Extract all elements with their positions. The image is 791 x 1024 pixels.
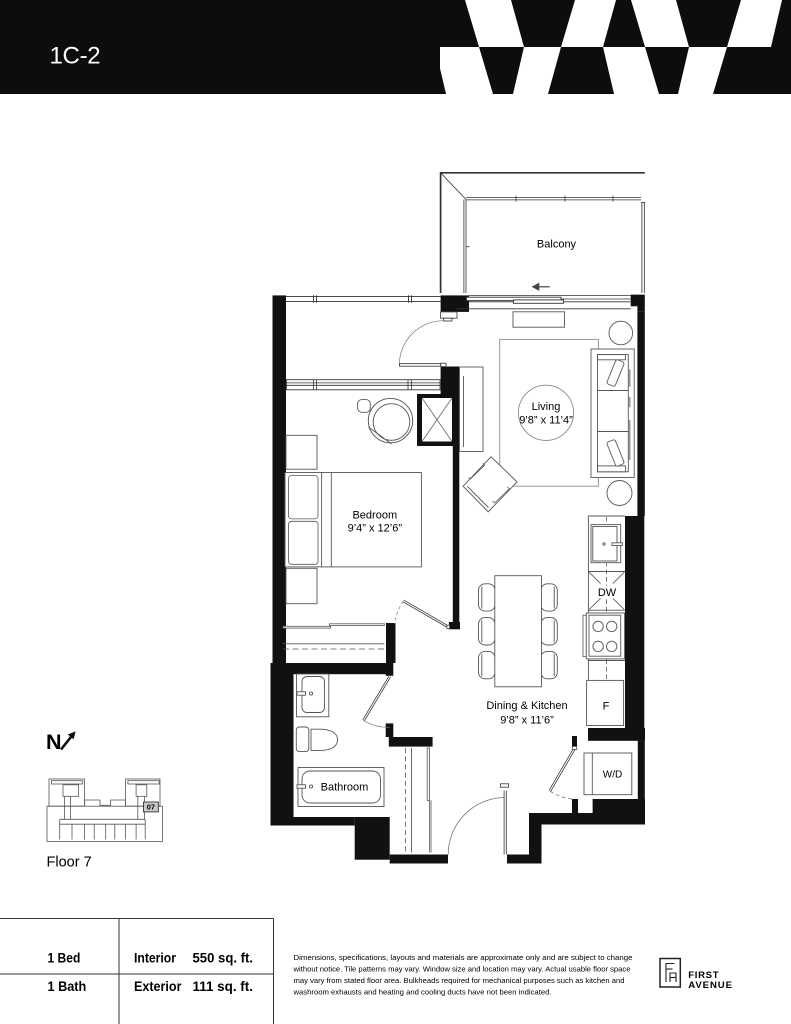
svg-text:Living: Living xyxy=(532,401,561,413)
svg-text:DW: DW xyxy=(598,587,617,599)
svg-text:washroom exhausts and heating: washroom exhausts and heating and coolin… xyxy=(292,987,551,996)
svg-text:Dining & Kitchen: Dining & Kitchen xyxy=(486,700,567,712)
svg-text:Dimensions, specifications, la: Dimensions, specifications, layouts and … xyxy=(294,953,633,962)
svg-text:111 sq. ft.: 111 sq. ft. xyxy=(193,979,254,994)
svg-text:W/D: W/D xyxy=(603,770,622,781)
svg-text:AVENUE: AVENUE xyxy=(688,980,732,991)
svg-text:Floor 7: Floor 7 xyxy=(47,855,92,871)
svg-text:Exterior: Exterior xyxy=(134,979,182,994)
svg-text:Bedroom: Bedroom xyxy=(352,510,397,522)
svg-text:9’8” x 11’4”: 9’8” x 11’4” xyxy=(519,415,573,427)
svg-text:may vary from stated floor are: may vary from stated floor area. Bulkhea… xyxy=(294,976,625,985)
svg-text:N: N xyxy=(46,730,62,754)
svg-text:without notice. Tile patterns: without notice. Tile patterns may vary. … xyxy=(292,964,630,973)
svg-text:F: F xyxy=(603,701,610,713)
svg-text:1 Bed: 1 Bed xyxy=(48,951,81,966)
svg-text:9’4” x 12’6”: 9’4” x 12’6” xyxy=(348,523,403,535)
svg-text:07: 07 xyxy=(147,803,155,812)
svg-text:Interior: Interior xyxy=(134,951,177,966)
svg-text:9’8” x 11’6”: 9’8” x 11’6” xyxy=(500,714,554,726)
svg-text:Balcony: Balcony xyxy=(537,239,577,251)
svg-text:1 Bath: 1 Bath xyxy=(48,979,87,994)
svg-text:550 sq. ft.: 550 sq. ft. xyxy=(193,951,254,966)
svg-text:Bathroom: Bathroom xyxy=(321,782,369,794)
svg-text:1C-2: 1C-2 xyxy=(50,42,101,69)
